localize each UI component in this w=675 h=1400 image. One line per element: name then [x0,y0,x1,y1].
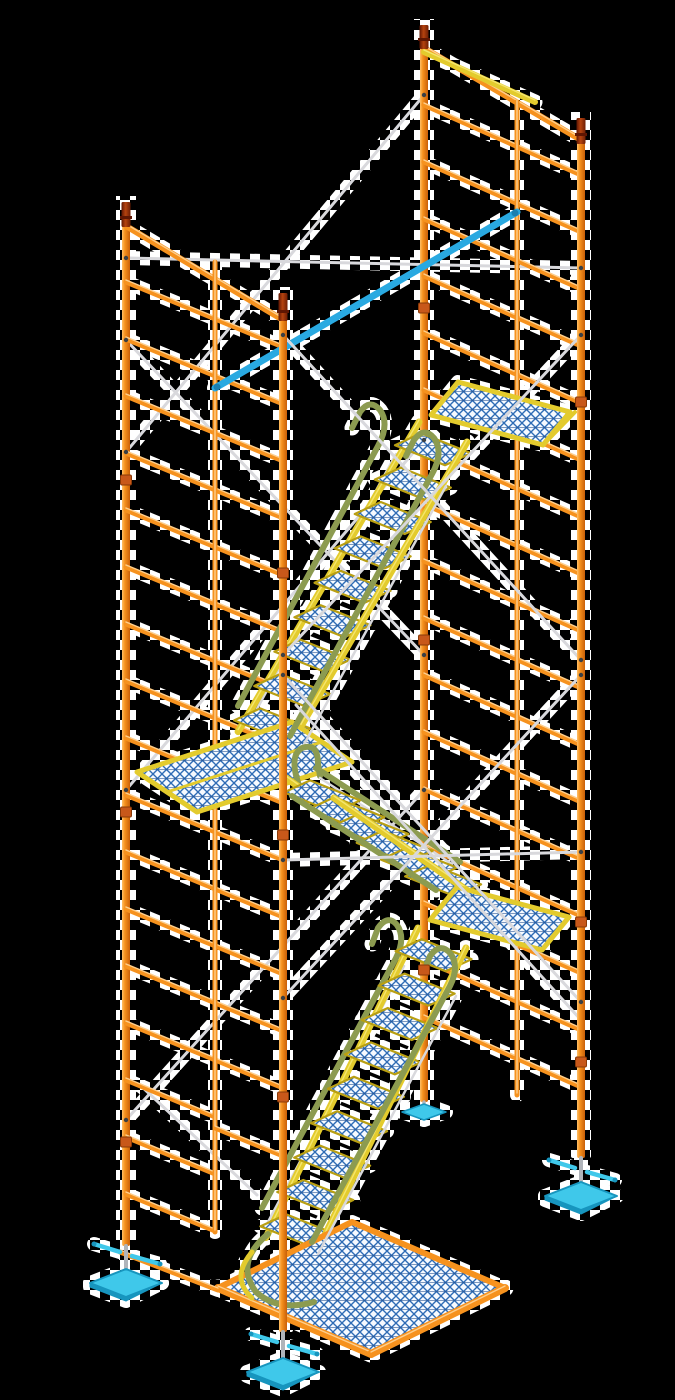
post [122,223,130,1246]
joint-collar [576,397,587,407]
joint-collar [419,965,430,975]
tube [424,1017,581,1087]
clamp-dot [579,658,583,662]
tube [126,567,283,632]
clamp-dot [124,256,128,260]
tube [126,1194,215,1231]
joint-collar [576,917,587,927]
scaffold-structure [90,25,618,1390]
joint-collar [419,303,430,313]
clamp-dot [613,1178,618,1183]
tube-highlight [126,508,283,573]
pin-collar [277,310,289,313]
clamp-dot [579,266,583,270]
clamp-dot [124,1118,128,1122]
clamp-dot [422,788,426,792]
joint-collar [278,830,289,840]
clamp-dot [579,333,583,337]
pin-collar [120,216,132,219]
tube [126,852,283,917]
clamp-dot [124,788,128,792]
clamp-dot [124,338,128,342]
joint-collar [121,1137,132,1147]
clamp-dot [92,1242,97,1247]
clamp-dot [422,653,426,657]
tube [126,510,283,575]
tube-highlight [215,1126,283,1154]
render-canvas [0,0,675,1400]
tube [126,226,283,320]
coupling-pin [577,118,586,144]
clamp-dot [579,1000,583,1004]
tube-highlight [126,1192,215,1229]
clamp-dot [214,384,221,391]
tube-highlight [126,565,283,630]
clamp-dot [281,333,285,337]
clamp-dot [124,450,128,454]
coupling-pin [420,25,429,49]
clamp-dot [249,1332,254,1337]
tube-highlight [126,850,283,915]
clamp-dot [512,210,519,217]
clamp-dot [315,1352,320,1357]
tube [215,1128,283,1156]
coupling-pin [279,293,288,321]
tube [126,909,283,974]
scaffold-tower-render [0,0,675,1400]
clamp-dot [422,93,426,97]
clamp-dot [281,858,285,862]
joint-collar [121,807,132,817]
joint-collar [278,568,289,578]
pin-collar [575,133,587,136]
tube [424,732,581,802]
clamp-dot [422,438,426,442]
tube [424,105,581,175]
joint-collar [121,475,132,485]
joint-collar [278,1092,289,1102]
clamp-dot [281,996,285,1000]
pin-collar [418,38,430,41]
post [279,317,287,1332]
clamp-dot [158,1262,163,1267]
tube-highlight [424,103,581,173]
tube-highlight [424,50,535,100]
tube-highlight [126,224,283,318]
joint-collar [576,1057,587,1067]
clamp-dot [547,1158,552,1163]
clamp-dot [281,653,285,657]
coupling-pin [122,202,131,227]
clamp-dot [579,850,583,854]
tube [424,52,535,102]
clamp-dot [579,673,583,677]
joint-collar [419,635,430,645]
tube-highlight [126,907,283,972]
tube [424,276,581,346]
clamp-dot [281,673,285,677]
post [577,140,585,1158]
